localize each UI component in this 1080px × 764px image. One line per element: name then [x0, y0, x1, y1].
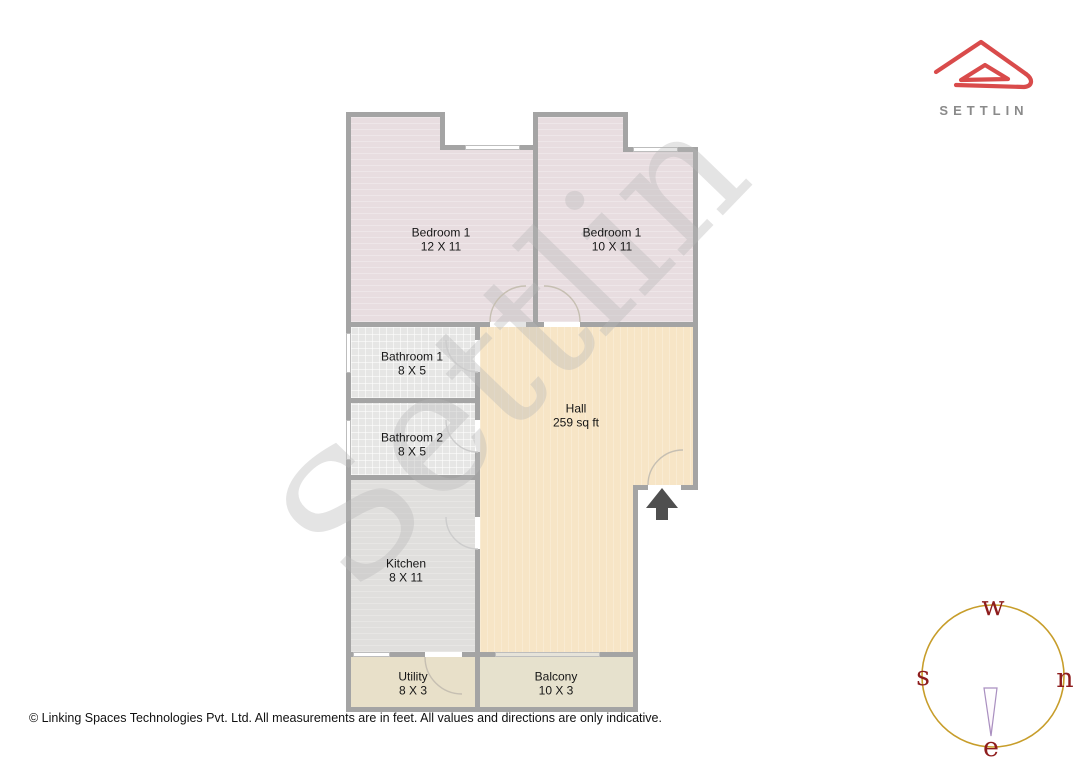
room-label-kitchen: Kitchen8 X 11 [386, 557, 426, 586]
room-label-bathroom-2: Bathroom 28 X 5 [381, 431, 443, 460]
door-arc-kitchen [446, 517, 478, 549]
entrance-arrow-icon [646, 488, 678, 520]
room-label-balcony: Balcony10 X 3 [535, 670, 578, 699]
room-label-hall: Hall259 sq ft [553, 402, 599, 431]
room-label-bedroom-left: Bedroom 112 X 11 [412, 226, 471, 255]
door-arc-bathroom-2 [446, 420, 478, 452]
room-label-bedroom-right: Bedroom 110 X 11 [583, 226, 642, 255]
room-label-utility: Utility8 X 3 [398, 670, 427, 699]
room-label-bathroom-1: Bathroom 18 X 5 [381, 350, 443, 379]
door-swing-layer [0, 0, 1080, 764]
door-arc-bedroom-left [490, 286, 526, 322]
door-arc-bathroom-1 [446, 340, 478, 372]
floor-plan: Bedroom 112 X 11 Bedroom 110 X 11 Bathro… [0, 0, 1080, 764]
door-arc-entrance [648, 450, 683, 485]
door-arc-bedroom-right [544, 286, 580, 322]
door-arc-utility [425, 657, 462, 694]
